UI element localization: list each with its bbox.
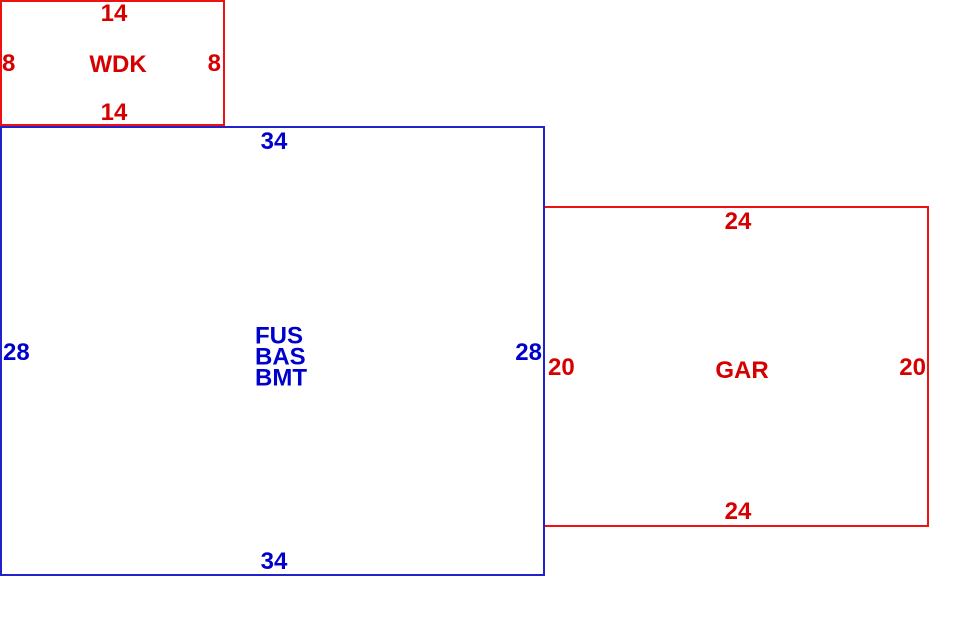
gar-dim-left-label: 20 xyxy=(548,356,575,380)
wdk-dim-bottom-label: 14 xyxy=(101,101,128,125)
gar-dim-bottom-label: 24 xyxy=(725,500,752,524)
fus-dim-right-label: 28 xyxy=(515,341,542,365)
fus-dim-top-label: 34 xyxy=(261,130,288,154)
wdk-room-label: WDK xyxy=(89,53,146,77)
gar-dim-top-label: 24 xyxy=(725,210,752,234)
wdk-dim-left-label: 8 xyxy=(2,52,15,76)
gar-room-label: GAR xyxy=(715,359,768,383)
fus-room-label-line3: BMT xyxy=(255,368,307,389)
fus-room-label: FUS BAS BMT xyxy=(255,326,307,389)
fus-dim-bottom-label: 34 xyxy=(261,550,288,574)
fus-dim-left-label: 28 xyxy=(3,341,30,365)
gar-dim-right-label: 20 xyxy=(899,356,926,380)
wdk-dim-right-label: 8 xyxy=(208,52,221,76)
floorplan-sketch: 14 14 8 8 WDK 34 34 28 28 FUS BAS BMT 24… xyxy=(0,0,980,640)
wdk-dim-top-label: 14 xyxy=(101,2,128,26)
